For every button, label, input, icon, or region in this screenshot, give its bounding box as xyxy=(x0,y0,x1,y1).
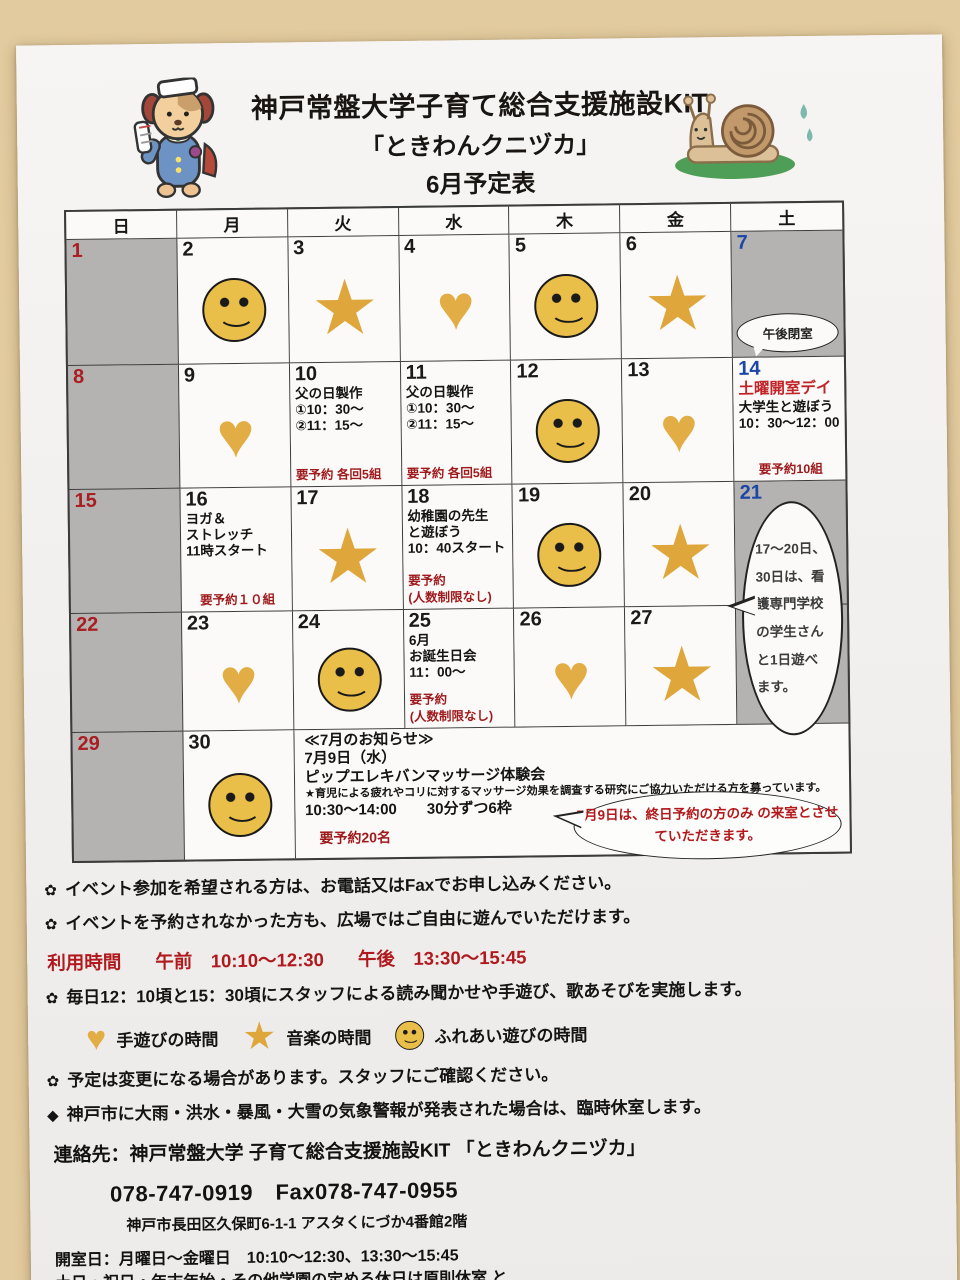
flower-bullet-icon: ✿ xyxy=(45,916,58,933)
snail-icon xyxy=(667,84,818,186)
usage-hours: 利用時間午前 10:10～12:30午後 13:30～15:45 xyxy=(47,938,953,975)
date-number: 1 xyxy=(71,240,173,262)
smiley-icon xyxy=(534,274,599,339)
date-number: 26 xyxy=(519,608,621,630)
icon-slot xyxy=(296,508,399,607)
legend-label-smiley: ふれあい遊びの時間 xyxy=(434,1021,587,1048)
july-notice-cell: ≪7月のお知らせ≫7月9日（水）ピップエレキバンマッサージ体験会★育児による疲れ… xyxy=(294,724,850,859)
legend-label-star: 音楽の時間 xyxy=(286,1023,371,1049)
date-number: 6 xyxy=(626,233,728,255)
icon-slot xyxy=(298,632,401,726)
icon-slot xyxy=(517,381,620,480)
day-header-4: 木 xyxy=(509,205,620,234)
date-number: 30 xyxy=(188,731,290,753)
icon-slot xyxy=(626,254,729,355)
smiley-icon xyxy=(536,399,601,464)
calendar-cell-29: 29 xyxy=(72,732,184,861)
icon-slot xyxy=(630,628,733,722)
heart-icon xyxy=(436,275,475,339)
date-number: 12 xyxy=(516,360,618,382)
smiley-icon xyxy=(208,772,273,837)
contact-address: 神戸市長田区久保町6-1-1 アスタくにづか4番館2階 xyxy=(126,1204,956,1235)
date-number: 18 xyxy=(407,486,509,508)
icon-slot xyxy=(627,380,730,479)
reservation-note: 要予約 各回5組 xyxy=(296,467,398,483)
icon-slot xyxy=(520,629,623,723)
calendar-cell-7: 7午後閉室 xyxy=(732,231,844,358)
icon-slot xyxy=(515,255,618,356)
calendar-cell-17: 17 xyxy=(291,486,403,611)
event-lines: 父の日製作 ①10：30～ ②11：15～ xyxy=(406,384,508,434)
date-number: 16 xyxy=(185,488,287,510)
note-text: イベントを予約されなかった方も、広場ではご自由に遊んでいただけます。 xyxy=(65,907,640,933)
smiley-icon xyxy=(537,523,602,588)
event-lines: 6月 お誕生日会 11：00～ xyxy=(409,632,511,682)
calendar-cell-12: 12 xyxy=(511,359,623,484)
icon-slot xyxy=(183,259,286,360)
calendar-cell-30: 30 xyxy=(183,730,295,859)
heart-icon xyxy=(219,648,258,712)
calendar: 日月火水木金土1234567午後閉室8910父の日製作 ①10：30～ ②11：… xyxy=(64,201,852,863)
star-icon xyxy=(646,515,715,592)
hours-label: 利用時間 xyxy=(47,951,121,973)
date-number: 17 xyxy=(296,487,398,509)
smiley-icon xyxy=(317,647,382,712)
reservation-note-2: (人数制限なし) xyxy=(408,590,510,606)
day-header-1: 月 xyxy=(177,209,288,238)
flower-bullet-icon: ✿ xyxy=(46,990,59,1007)
photo-of-schedule: 神戸常盤大学子育て総合支援施設KIT 「ときわんクニヅカ」 6月予定表 日月火水… xyxy=(0,0,960,1280)
icon-slot xyxy=(293,258,396,359)
icon-slot xyxy=(187,633,290,727)
calendar-cell-14: 14土曜開室デイ大学生と遊ぼう 10：30～12：00要予約10組 xyxy=(733,357,845,482)
contact-phone-fax: 078-747-0919 Fax078-747-0955 xyxy=(110,1166,956,1208)
calendar-grid: 日月火水木金土1234567午後閉室8910父の日製作 ①10：30～ ②11：… xyxy=(64,201,852,863)
hours-morning: 午前 10:10～12:30 xyxy=(155,948,324,971)
calendar-cell-11: 11父の日製作 ①10：30～ ②11：15～要予約 各回5組 xyxy=(400,361,512,486)
calendar-cell-23: 23 xyxy=(182,611,294,731)
calendar-cell-13: 13 xyxy=(622,358,734,483)
calendar-cell-19: 19 xyxy=(513,483,625,608)
date-number: 5 xyxy=(515,234,617,256)
date-number: 29 xyxy=(77,733,179,755)
date-number: 22 xyxy=(76,614,178,636)
date-number: 24 xyxy=(298,611,400,633)
star-icon xyxy=(643,266,712,343)
star-icon xyxy=(310,270,379,347)
calendar-cell-4: 4 xyxy=(399,235,511,362)
calendar-cell-5: 5 xyxy=(510,233,622,360)
date-number: 8 xyxy=(73,366,175,388)
date-number: 15 xyxy=(74,490,176,512)
reservation-note: 要予約10組 xyxy=(739,462,842,478)
contact-name: 連絡先：神戸常盤大学 子育て総合支援施設KIT 「ときわんクニヅカ」 xyxy=(53,1129,955,1167)
note-text: 予定は変更になる場合があります。スタッフにご確認ください。 xyxy=(67,1065,558,1090)
day-header-5: 金 xyxy=(620,204,731,233)
date-number: 2 xyxy=(182,238,284,260)
notes-section: ✿イベント参加を希望される方は、お電話又はFaxでお申し込みください。 ✿イベン… xyxy=(44,868,955,1126)
star-icon xyxy=(242,1018,277,1056)
calendar-cell-26: 26 xyxy=(514,607,626,727)
hours-afternoon: 午後 13:30～15:45 xyxy=(358,946,527,969)
star-icon xyxy=(647,637,716,714)
calendar-cell-16: 16ヨガ＆ ストレッチ 11時スタート要予約１０組 xyxy=(180,487,292,612)
event-lines: 父の日製作 ①10：30～ ②11：15～ xyxy=(295,385,397,435)
note-schedule-change: ✿予定は変更になる場合があります。スタッフにご確認ください。 xyxy=(47,1060,955,1093)
contact-section: 連絡先：神戸常盤大学 子育て総合支援施設KIT 「ときわんクニヅカ」 078-7… xyxy=(53,1129,957,1280)
date-number: 13 xyxy=(627,359,729,381)
calendar-cell-27: 27 xyxy=(625,606,737,726)
reservation-note: 要予約１０組 xyxy=(187,592,289,608)
note-weather-closure: ◆神戸市に大雨・洪水・暴風・大雪の気象警報が発表された場合は、臨時休室します。 xyxy=(47,1093,955,1126)
date-number: 25 xyxy=(409,610,511,632)
flower-bullet-icon: ✿ xyxy=(47,1073,60,1090)
event-lines: 大学生と遊ぼう 10：30～12：00 xyxy=(739,398,842,432)
calendar-cell-6: 6 xyxy=(621,232,733,359)
calendar-cell-15: 15 xyxy=(69,489,181,614)
icon-slot xyxy=(189,752,292,856)
icon-slot xyxy=(404,257,507,358)
heart-icon xyxy=(660,397,699,461)
event-title: 土曜開室デイ xyxy=(738,380,841,399)
smiley-icon xyxy=(395,1020,424,1049)
date-number: 19 xyxy=(518,484,620,506)
icon-slot xyxy=(629,504,732,603)
calendar-cell-20: 20 xyxy=(624,482,736,607)
diamond-bullet-icon: ◆ xyxy=(47,1107,59,1124)
afternoon-closed-bubble: 午後閉室 xyxy=(737,313,839,353)
date-number: 10 xyxy=(295,363,397,385)
day-header-6: 土 xyxy=(731,203,842,232)
heart-icon xyxy=(552,644,591,708)
note-text: 毎日12：10頃と15：30頃にスタッフによる読み聞かせや手遊び、歌あそびを実施… xyxy=(66,979,752,1006)
flower-bullet-icon: ✿ xyxy=(44,882,57,899)
calendar-cell-3: 3 xyxy=(288,236,400,363)
heart-icon xyxy=(86,1022,107,1056)
calendar-cell-24: 24 xyxy=(293,610,405,730)
day-header-3: 水 xyxy=(399,207,510,236)
calendar-cell-2: 2 xyxy=(177,237,289,364)
icon-slot xyxy=(184,385,287,484)
calendar-cell-1: 1 xyxy=(66,239,178,366)
calendar-cell-22: 22 xyxy=(71,613,183,733)
date-number: 3 xyxy=(293,237,395,259)
event-lines: ヨガ＆ ストレッチ 11時スタート xyxy=(186,510,288,560)
legend-label-heart: 手遊びの時間 xyxy=(116,1025,218,1051)
date-number: 9 xyxy=(184,364,286,386)
event-lines: 幼稚園の先生 と遊ぼう 10：40スタート xyxy=(407,508,509,558)
note-event-signup: ✿イベント参加を希望される方は、お電話又はFaxでお申し込みください。 xyxy=(44,868,952,901)
schedule-paper: 神戸常盤大学子育て総合支援施設KIT 「ときわんクニヅカ」 6月予定表 日月火水… xyxy=(16,34,958,1280)
star-icon xyxy=(313,519,382,596)
icon-legend: 手遊びの時間 音楽の時間 ふれあい遊びの時間 xyxy=(86,1010,954,1059)
reservation-note: 要予約 xyxy=(410,692,512,708)
dog-nurse-mascot-icon xyxy=(120,77,236,202)
note-text: イベント参加を希望される方は、お電話又はFaxでお申し込みください。 xyxy=(65,873,621,899)
icon-slot xyxy=(518,505,621,604)
heart-icon xyxy=(216,403,255,467)
date-number: 4 xyxy=(404,236,506,258)
note-text: 神戸市に大雨・洪水・暴風・大雪の気象警報が発表された場合は、臨時休室します。 xyxy=(67,1097,711,1124)
calendar-cell-25: 256月 お誕生日会 11：00～要予約(人数制限なし) xyxy=(404,609,516,729)
date-number: 23 xyxy=(187,612,289,634)
calendar-cell-8: 8 xyxy=(68,365,180,490)
note-daily-activities: ✿毎日12：10頃と15：30頃にスタッフによる読み聞かせや手遊び、歌あそびを実… xyxy=(46,976,954,1009)
calendar-cell-9: 9 xyxy=(179,363,291,488)
note-free-play: ✿イベントを予約されなかった方も、広場ではご自由に遊んでいただけます。 xyxy=(45,902,953,935)
reservation-note: 要予約 各回5組 xyxy=(407,466,509,482)
smiley-icon xyxy=(202,278,267,343)
calendar-cell-18: 18幼稚園の先生 と遊ぼう 10：40スタート要予約(人数制限なし) xyxy=(402,485,514,610)
date-number: 11 xyxy=(406,362,508,384)
date-number: 20 xyxy=(629,483,731,505)
reservation-note-2: (人数制限なし) xyxy=(410,709,512,725)
reservation-note: 要予約 xyxy=(408,573,510,589)
calendar-cell-10: 10父の日製作 ①10：30～ ②11：15～要予約 各回5組 xyxy=(290,362,402,487)
day-header-2: 火 xyxy=(288,208,399,237)
day-header-0: 日 xyxy=(66,211,177,240)
date-number: 7 xyxy=(737,232,840,254)
